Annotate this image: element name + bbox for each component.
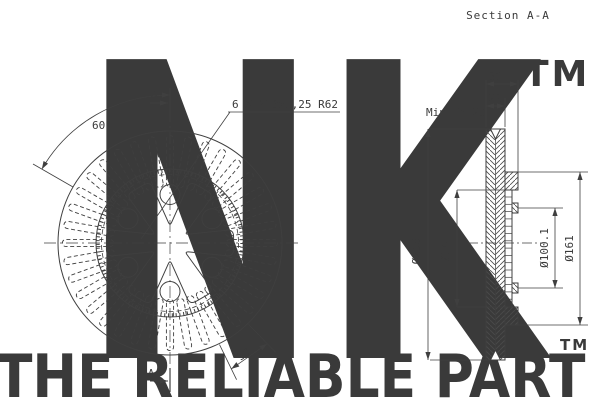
bolt-spec-label: 6 X M10x1,25 R62 xyxy=(232,98,338,111)
arrowhead xyxy=(577,172,582,180)
rotor-plate-left-hatch xyxy=(486,129,496,360)
dia-flange-label: Ø161 xyxy=(563,235,576,262)
dim-width-disc-label: 22 xyxy=(488,92,501,105)
dia-bolt-circle-label: Ø100.1 xyxy=(538,228,551,268)
technical-drawing-page: NK TM THE RELIABLE PART TM xyxy=(0,0,600,400)
dim-width-total-label: 39.1 xyxy=(489,70,516,83)
section-marker-top-label: A xyxy=(151,87,158,100)
dia-hub-label: Ø141 xyxy=(439,235,452,262)
flange-top xyxy=(505,172,518,190)
arrowhead xyxy=(552,208,557,216)
min-thickness-label: Min Th 20 xyxy=(426,106,486,119)
arrowhead xyxy=(552,280,557,288)
brake-disc-drawing: NK TM THE RELIABLE PART TM xyxy=(0,0,600,400)
brand-logo-watermark: NK xyxy=(80,0,553,400)
flange-bottom xyxy=(505,307,518,325)
arrowhead xyxy=(577,317,582,325)
section-marker-bottom-label: A xyxy=(148,367,155,380)
arrowhead xyxy=(42,161,48,169)
angle-label: 60° xyxy=(92,119,112,132)
trademark-bottom: TM xyxy=(560,336,589,354)
trademark-top: TM xyxy=(524,54,590,95)
angle-leg-line xyxy=(33,164,73,187)
section-title: Section A-A xyxy=(466,9,550,22)
rotor-plate-right-hatch xyxy=(496,129,506,360)
bolt-boss-top xyxy=(512,203,518,213)
bolt-boss-bottom xyxy=(512,283,518,293)
dia-outer-label: Ø266.7 xyxy=(410,225,423,265)
